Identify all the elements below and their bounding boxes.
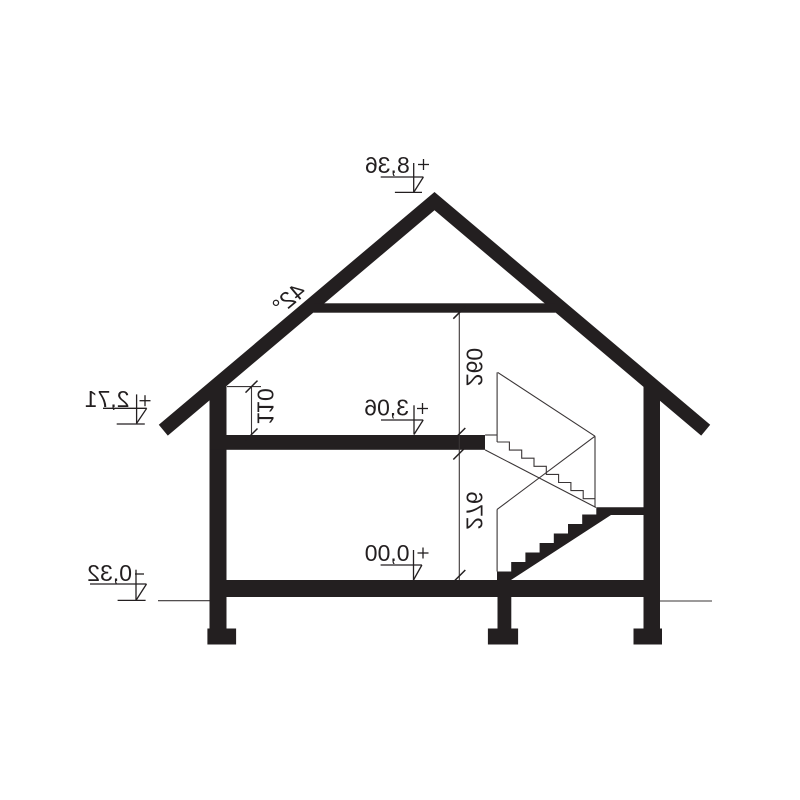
svg-text:8,36: 8,36 bbox=[365, 152, 410, 178]
svg-text:110: 110 bbox=[253, 388, 279, 425]
svg-text:3,06: 3,06 bbox=[364, 395, 409, 421]
svg-text:2,71: 2,71 bbox=[85, 386, 130, 412]
svg-text:276: 276 bbox=[462, 491, 488, 529]
svg-text:260: 260 bbox=[462, 348, 488, 386]
svg-text:0,32: 0,32 bbox=[87, 560, 132, 586]
svg-text:0,00: 0,00 bbox=[365, 540, 410, 566]
